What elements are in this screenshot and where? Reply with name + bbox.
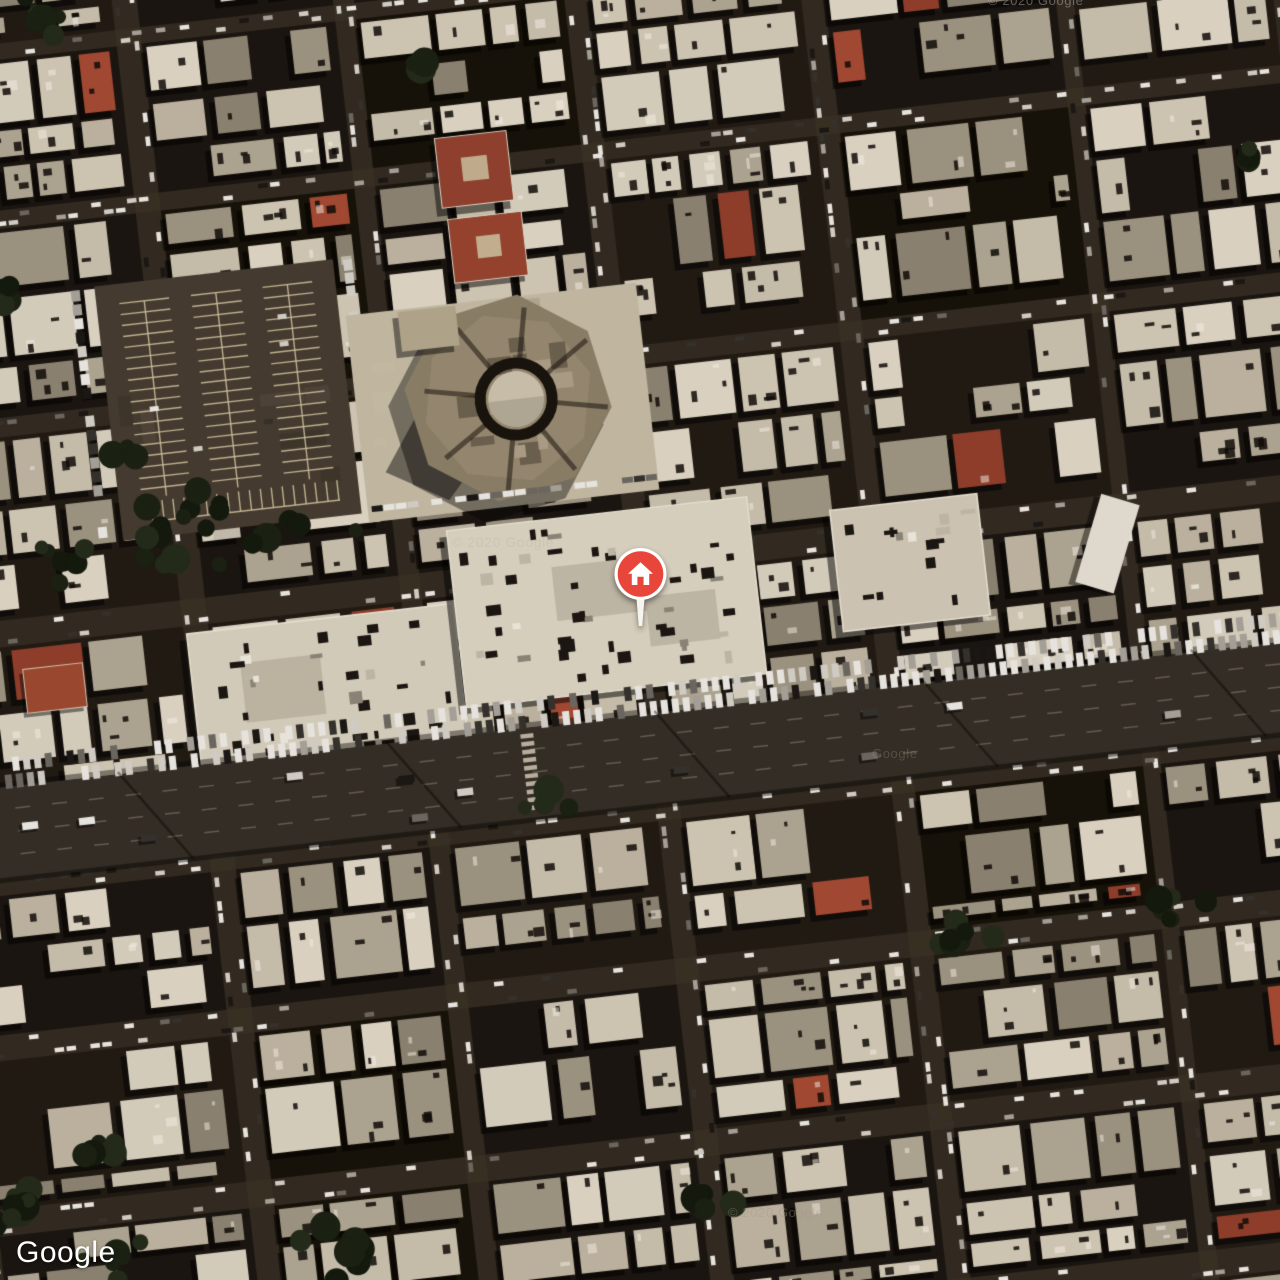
home-pin-marker[interactable] [612, 547, 669, 629]
home-pin-icon [612, 547, 669, 629]
satellite-imagery[interactable] [0, 0, 1280, 1280]
google-logo[interactable]: Google [16, 1236, 116, 1270]
map-viewport: © 2020 Google © 2020 Google Google © 202… [0, 0, 1280, 1280]
